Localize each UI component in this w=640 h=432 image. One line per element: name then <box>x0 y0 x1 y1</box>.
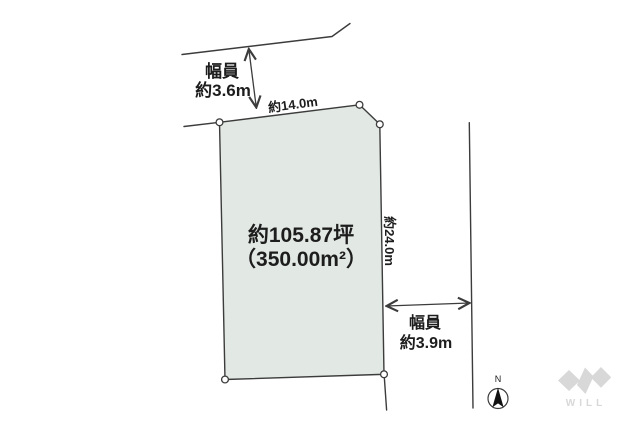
logo-wordmark: WILL <box>566 398 606 409</box>
vertex-marker <box>216 119 223 126</box>
plot-area-tsubo-label: 約105.87坪 <box>248 223 354 247</box>
north-label: N <box>495 374 502 384</box>
site-plan-page: 幅員 約3.6m 約14.0m 約105.87坪 （350.00m²） 約24.… <box>0 0 640 427</box>
plot-area-sqm-label: （350.00m²） <box>235 247 367 271</box>
site-plan-diagram: 幅員 約3.6m 約14.0m 約105.87坪 （350.00m²） 約24.… <box>0 0 640 427</box>
road-top-outer-edge-line <box>182 24 350 55</box>
road-right-edge-line <box>469 123 473 408</box>
north-compass: N <box>488 374 508 409</box>
road-right-width-label-line1: 幅員 <box>409 313 441 332</box>
edge-right-length-label: 約24.0m <box>382 216 397 266</box>
road-bottom-stub-line <box>384 377 386 410</box>
road-top-width-label-line2: 約3.6m <box>195 80 251 100</box>
logo-diamond-right-icon <box>591 367 611 388</box>
will-logo: WILL <box>558 367 611 409</box>
logo-diamond-left-icon <box>558 370 580 391</box>
vertex-marker <box>381 371 388 378</box>
road-right-width-arrow <box>387 303 470 306</box>
vertex-marker <box>376 121 383 128</box>
road-right-width-label-line2: 約3.9m <box>400 333 452 352</box>
logo-diamond-middle-icon <box>577 368 594 395</box>
road-top-width-label-line1: 幅員 <box>205 61 239 81</box>
vertex-marker <box>356 101 363 108</box>
road-top-inner-edge-line <box>184 122 220 126</box>
vertex-marker <box>222 376 229 383</box>
